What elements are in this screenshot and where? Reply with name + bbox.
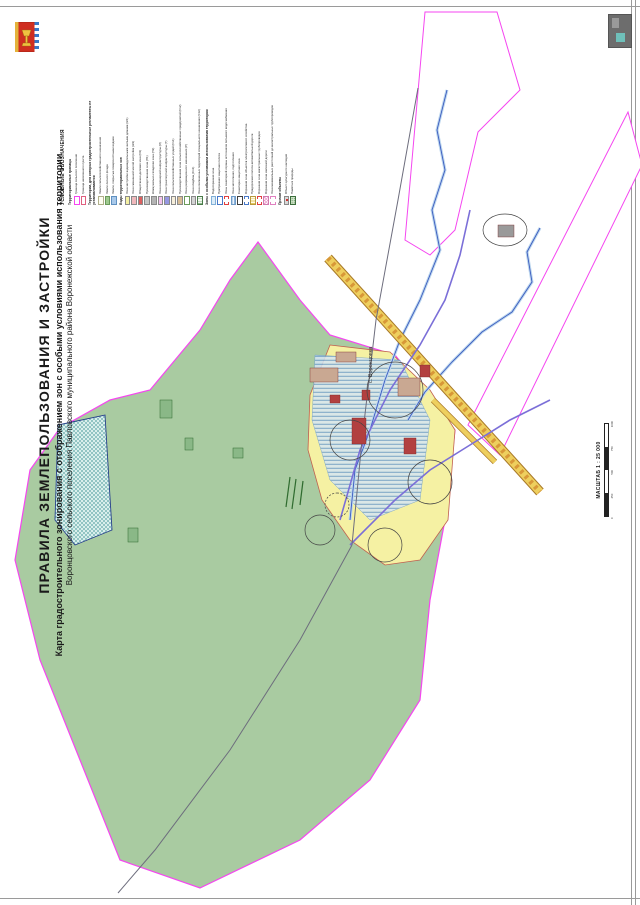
scale-ticks: 02505007501000 xyxy=(610,421,614,519)
legend-title: УСЛОВНЫЕ ОБОЗНАЧЕНИЯ xyxy=(60,81,66,205)
legend-swatch xyxy=(224,196,230,205)
legend-item-label: Зона затопления, подтопления xyxy=(232,152,235,194)
legend-swatch xyxy=(164,196,170,205)
legend-item: Охранная зона железной дороги xyxy=(263,81,269,205)
legend-item: Зона озелененных территорий специального… xyxy=(197,81,203,205)
legend-item-label: Прибрежная защитная полоса xyxy=(218,153,221,194)
map-boundary-wedge-east xyxy=(468,112,640,455)
legend-item-label: Зона инженерной инфраструктуры (И) xyxy=(159,142,162,194)
legend-swatch xyxy=(138,196,144,205)
legend-item: Объект культурного наследия xyxy=(284,81,290,205)
legend-swatch xyxy=(74,196,80,205)
legend-item-label: Зона смешанной жилой застройки (Ж2) xyxy=(132,141,135,194)
legend-swatch xyxy=(81,196,87,205)
legend-group-title: Виды территориальных зон xyxy=(120,81,124,205)
legend-swatch xyxy=(131,196,137,205)
legend-item: Охранная зона магистральных трубопроводо… xyxy=(257,81,263,205)
legend-swatch xyxy=(237,196,243,205)
scale-tick-label: 750 xyxy=(610,446,614,451)
legend-swatch xyxy=(231,196,237,205)
legend-item: Зона рекреационного назначения (Р) xyxy=(184,81,190,205)
legend-item-label: Зона кладбищ (Сп1) xyxy=(192,167,195,194)
legend-swatch xyxy=(244,196,250,205)
legend-swatch xyxy=(284,196,290,205)
locator-thumbnail xyxy=(608,14,632,48)
map-municipal-territory xyxy=(15,242,455,888)
legend-item-label: Охранная зона магистральных трубопроводо… xyxy=(258,131,261,194)
coat-of-arms-icon xyxy=(15,22,39,52)
legend-swatch xyxy=(125,196,131,205)
legend-item-label: Зона сельскохозяйственных угодий (Сх1) xyxy=(172,139,175,194)
legend-item: Зона сельскохозяйственных угодий (Сх1) xyxy=(171,81,177,205)
legend-swatch xyxy=(98,196,104,205)
scale-tick-label: 500 xyxy=(610,470,614,475)
legend-item: Производственная зона (П1) xyxy=(144,81,150,205)
legend-item: Граница населенного пункта xyxy=(81,81,87,205)
legend-item: Зона транспортной инфраструктуры (Т) xyxy=(164,81,170,205)
legend-swatch xyxy=(290,196,296,205)
legend-swatch xyxy=(144,196,150,205)
legend-item-label: Придорожная полоса автомобильной дороги xyxy=(251,134,254,194)
legend-swatch xyxy=(257,196,263,205)
legend-item-label: Зона застройки индивидуальными жилыми до… xyxy=(126,118,129,194)
legend-swatch xyxy=(197,196,203,205)
legend-item-label: Граница населенного пункта xyxy=(82,156,85,194)
legend-item-label: Производственная зона (П1) xyxy=(146,155,149,194)
legend-item: Зона застройки индивидуальными жилыми до… xyxy=(125,81,131,205)
legend-swatch xyxy=(105,196,111,205)
legend-item: Земли сельскохозяйственного назначения xyxy=(98,81,104,205)
legend-item: Коммунально-складская зона (П2) xyxy=(151,81,157,205)
legend-item-label: Зона минимальных расстояний до магистрал… xyxy=(271,105,274,194)
map-settlement-label: с. Воронцовка xyxy=(368,346,374,383)
legend-item-label: Водоохранная зона xyxy=(212,168,215,194)
legend-item: Зоны санитарной охраны источников питьев… xyxy=(224,81,230,205)
legend-item-label: Охранная зона объектов электросетевого х… xyxy=(245,124,248,194)
legend-swatch xyxy=(211,196,217,205)
scale-tick-label: 0 xyxy=(610,517,614,519)
legend-item-label: Земли, покрытые поверхностными водами xyxy=(112,137,115,194)
locator-inset xyxy=(612,18,619,28)
legend-item-label: Памятник природы xyxy=(291,168,294,194)
legend-item: Земли, покрытые поверхностными водами xyxy=(111,81,117,205)
legend-item: Зона инженерной инфраструктуры (И) xyxy=(158,81,164,205)
map-boundary-wedge-north xyxy=(405,12,520,255)
page-title: ПРАВИЛА ЗЕМЛЕПОЛЬЗОВАНИЯ И ЗАСТРОЙКИ xyxy=(36,55,53,755)
scale-bar xyxy=(604,423,609,517)
legend-swatch xyxy=(111,196,117,205)
legend-groups: Территориальные границыГраница сельского… xyxy=(69,81,296,205)
legend-item-label: Охранная зона железной дороги xyxy=(265,150,268,194)
scale-tick-label: 1000 xyxy=(610,421,614,427)
legend-swatch xyxy=(250,196,256,205)
legend-swatch xyxy=(270,196,276,205)
legend-group-title: Территории, для которых градостроительны… xyxy=(89,81,97,205)
legend-item: Придорожная полоса автомобильной дороги xyxy=(250,81,256,205)
legend-item-label: Санитарно-защитная зона xyxy=(238,158,241,194)
legend-item: Охранная зона объектов электросетевого х… xyxy=(244,81,250,205)
legend-item-label: Объект культурного наследия xyxy=(285,154,288,194)
legend-item-label: Земли сельскохозяйственного назначения xyxy=(99,137,102,194)
legend-swatch xyxy=(217,196,223,205)
legend-item-label: Общественно-деловая зона (О1) xyxy=(139,150,142,194)
map-sheet-page: с. Воронцовка ПРАВИЛА ЗЕМЛЕПОЛЬЗОВАНИЯ И… xyxy=(0,0,640,905)
legend-item: Зона затопления, подтопления xyxy=(231,81,237,205)
legend-item-label: Земли лесного фонда xyxy=(106,164,109,194)
legend-group-title: Территориальные границы xyxy=(69,81,73,205)
legend-item: Зона минимальных расстояний до магистрал… xyxy=(270,81,276,205)
legend-swatch xyxy=(151,196,157,205)
scale-tick-label: 250 xyxy=(610,494,614,499)
legend-item: Производственная зона сельскохозяйственн… xyxy=(177,81,183,205)
scale-block: МАСШТАБ 1 : 25 000 02505007501000 xyxy=(596,415,614,525)
legend-item: Зона кладбищ (Сп1) xyxy=(191,81,197,205)
legend-item-label: Зона транспортной инфраструктуры (Т) xyxy=(165,141,168,194)
legend-group-title: Зоны с особыми условиями использования т… xyxy=(206,81,210,205)
legend-group-title: Прочие объекты xyxy=(279,81,283,205)
legend-swatch xyxy=(191,196,197,205)
legend-swatch xyxy=(263,196,269,205)
drawing-sheet: с. Воронцовка ПРАВИЛА ЗЕМЛЕПОЛЬЗОВАНИЯ И… xyxy=(0,0,640,905)
legend-item-label: Зона рекреационного назначения (Р) xyxy=(185,144,188,194)
legend-swatch xyxy=(177,196,183,205)
legend-swatch xyxy=(158,196,164,205)
legend-item-label: Производственная зона сельскохозяйственн… xyxy=(179,105,182,194)
legend-item: Общественно-деловая зона (О1) xyxy=(138,81,144,205)
legend-item-label: Граница сельского поселения xyxy=(75,154,78,194)
legend-item: Земли лесного фонда xyxy=(105,81,111,205)
legend-item-label: Коммунально-складская зона (П2) xyxy=(152,148,155,194)
legend-item: Граница сельского поселения xyxy=(74,81,80,205)
legend-item: Водоохранная зона xyxy=(211,81,217,205)
legend-swatch xyxy=(171,196,177,205)
legend-item: Прибрежная защитная полоса xyxy=(217,81,223,205)
legend-item: Зона смешанной жилой застройки (Ж2) xyxy=(131,81,137,205)
scale-label: МАСШТАБ 1 : 25 000 xyxy=(596,415,602,525)
legend-swatch xyxy=(184,196,190,205)
legend-item-label: Зона озелененных территорий специального… xyxy=(198,109,201,194)
legend: УСЛОВНЫЕ ОБОЗНАЧЕНИЯ Территориальные гра… xyxy=(60,81,296,205)
legend-item-label: Зоны санитарной охраны источников питьев… xyxy=(225,108,228,194)
locator-highlight xyxy=(616,33,625,42)
coat-of-arms xyxy=(12,17,40,49)
legend-item: Памятник природы xyxy=(290,81,296,205)
legend-item: Санитарно-защитная зона xyxy=(237,81,243,205)
